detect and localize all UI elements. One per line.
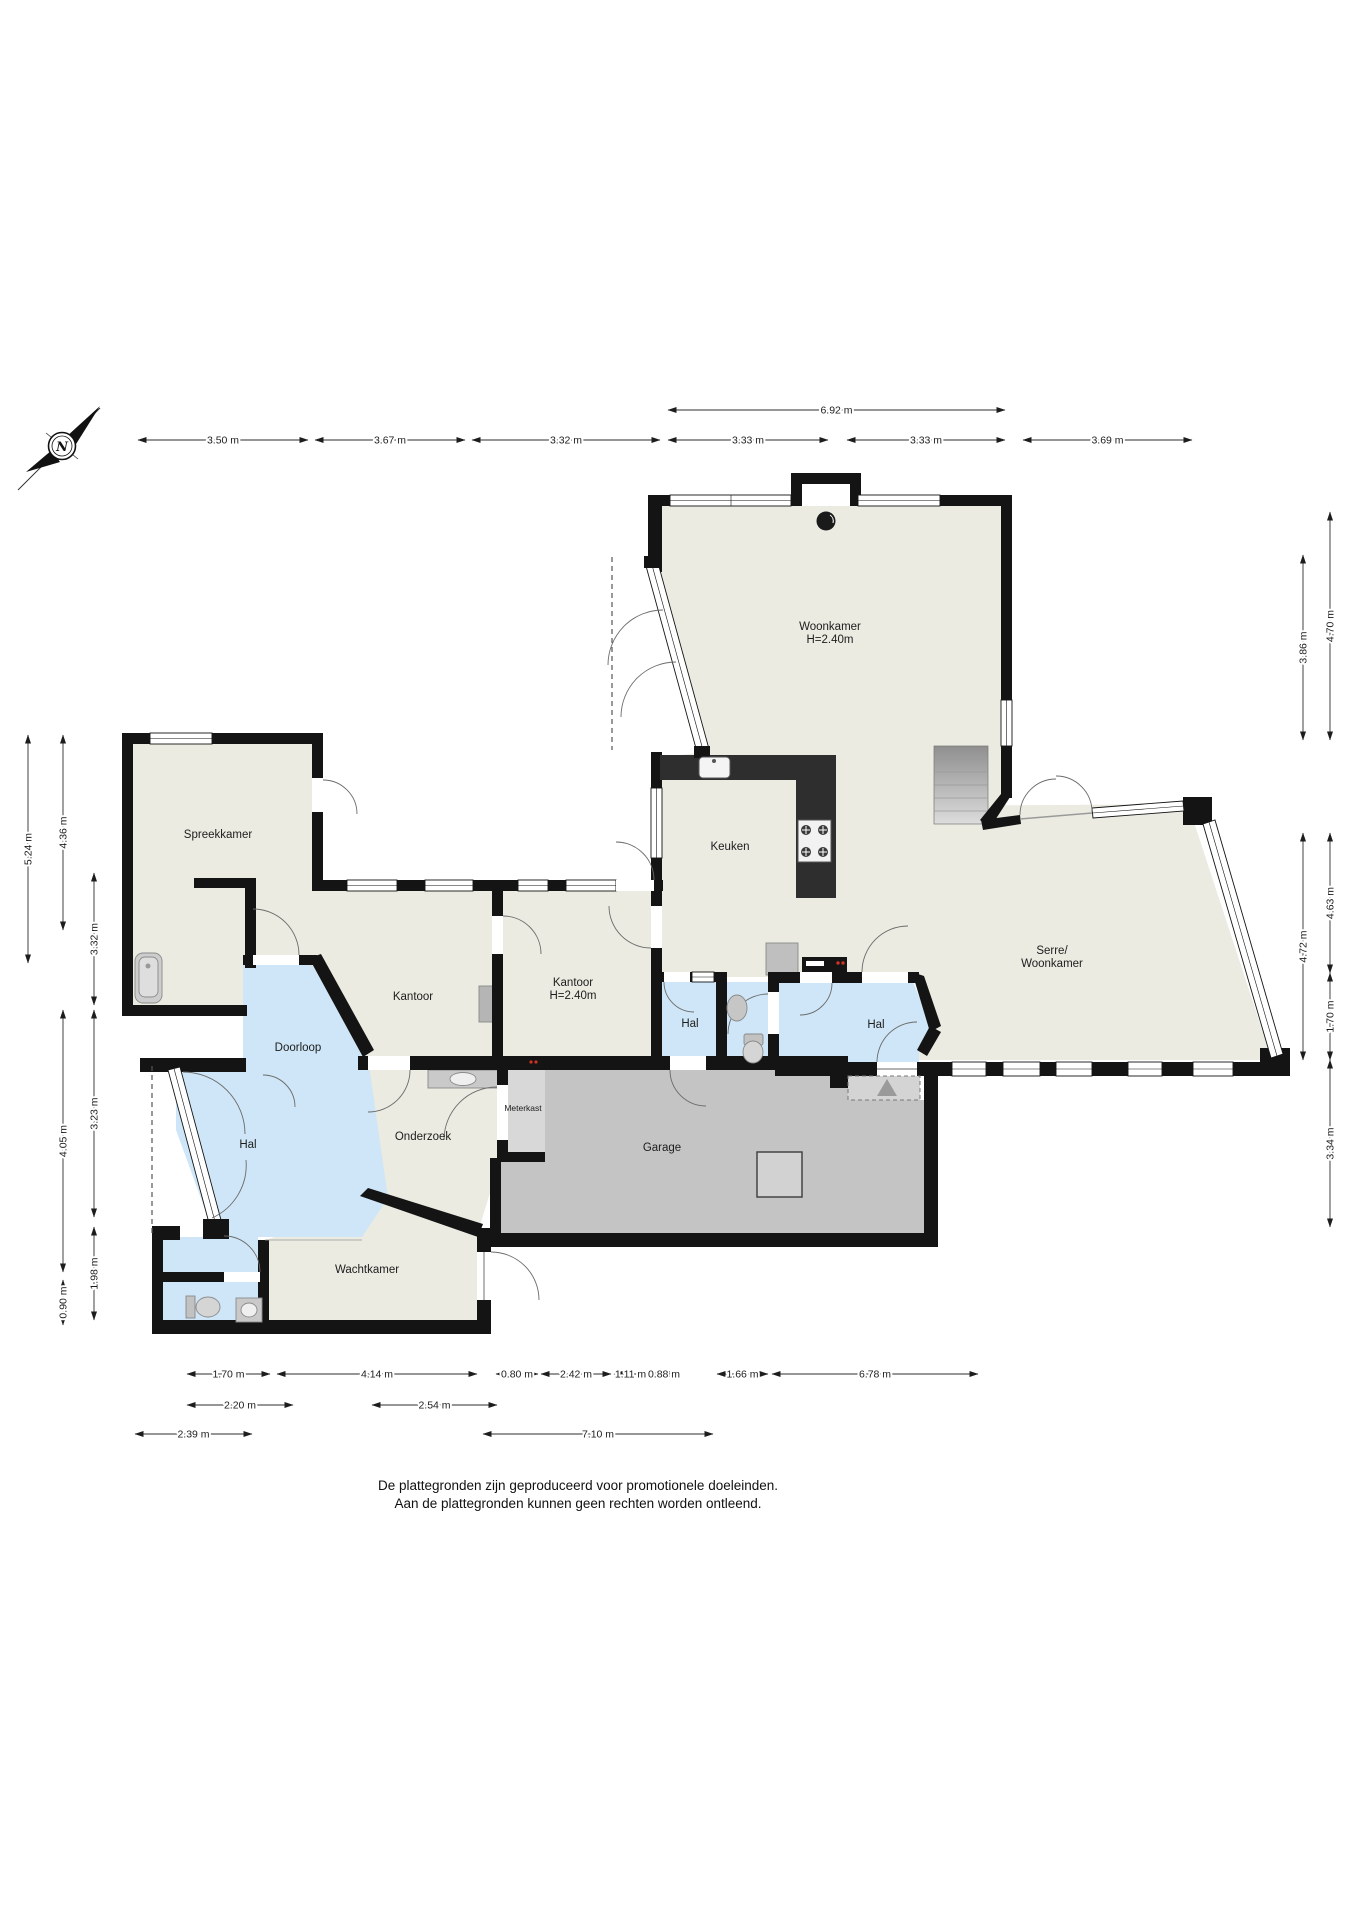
dim-label: 3.67 m (374, 435, 406, 447)
dim-label: 2.39 m (177, 1429, 209, 1441)
dim-label: 3.69 m (1091, 435, 1123, 447)
room-label-hal-links: Hal (239, 1139, 256, 1151)
dim-label: 4.72 m (1298, 930, 1310, 962)
dim-label: 0.90 m (58, 1286, 70, 1318)
dim-label: 4.05 m (58, 1125, 70, 1157)
dim-label: 1.70 m (212, 1369, 244, 1381)
floorplan-page: N 6.92 m3.50 m3.67 m3.32 m3.33 m3.33 m3.… (0, 0, 1358, 1920)
room-label-hal-klein: Hal (681, 1018, 698, 1030)
room-label-spreekkamer: Spreekkamer (184, 829, 253, 841)
room-label-kantoor-1: Kantoor (393, 991, 433, 1003)
compass-icon: N (18, 406, 100, 490)
dim-label: 2.54 m (418, 1400, 450, 1412)
dim-label: 3.32 m (550, 435, 582, 447)
kantoor-cabinet (479, 986, 493, 1022)
dim-label: 1.11 m (615, 1369, 647, 1381)
dim-label: 1.98 m (89, 1257, 101, 1289)
dim-label: 4.63 m (1325, 887, 1337, 919)
kitchen-counter-top (660, 755, 836, 780)
kitchen-cabinet (766, 943, 798, 975)
room-sublabel-serre: Woonkamer (1021, 958, 1083, 970)
room-label-woonkamer: Woonkamer (799, 621, 861, 633)
dim-label: 7.10 m (582, 1429, 614, 1441)
room-label-wachtkamer: Wachtkamer (335, 1264, 399, 1276)
dim-label: 3.33 m (732, 435, 764, 447)
room-label-serre: Serre/ (1036, 945, 1068, 957)
dim-label: 3.86 m (1298, 631, 1310, 663)
dim-label: 4.36 m (58, 816, 70, 848)
room-sublabel-kantoor-2: H=2.40m (550, 990, 597, 1002)
dim-label: 1.70 m (1325, 1000, 1337, 1032)
footer-disclaimer-line2: Aan de plattegronden kunnen geen rechten… (394, 1496, 761, 1511)
dim-label: 3.32 m (89, 923, 101, 955)
dim-label: 0.80 m (501, 1369, 533, 1381)
room-label-doorloop: Doorloop (275, 1042, 322, 1054)
dim-label: 2.42 m (560, 1369, 592, 1381)
room-label-keuken: Keuken (710, 841, 749, 853)
dim-label: 5.24 m (23, 833, 35, 865)
toilet-links-tank (186, 1296, 195, 1318)
dim-label: 6.78 m (859, 1369, 891, 1381)
dim-label: 3.33 m (910, 435, 942, 447)
room-label-kantoor-2: Kantoor (553, 977, 593, 989)
onderzoek-sink (450, 1073, 476, 1086)
dim-label: 0.88 m (648, 1369, 680, 1381)
dim-label: 6.92 m (820, 405, 852, 417)
room-label-meterkast: Meterkast (504, 1103, 542, 1113)
dim-label: 3.34 m (1325, 1127, 1337, 1159)
hal-rechts-floor (779, 982, 933, 1062)
footer-disclaimer-line1: De plattegronden zijn geproduceerd voor … (378, 1478, 778, 1493)
dim-label: 4.70 m (1325, 610, 1337, 642)
room-label-garage: Garage (643, 1142, 681, 1154)
floorplan-drawing: N 6.92 m3.50 m3.67 m3.32 m3.33 m3.33 m3.… (0, 0, 1358, 1920)
room-label-onderzoek: Onderzoek (395, 1131, 452, 1143)
dim-label: 4.14 m (361, 1369, 393, 1381)
room-label-hal-rechts: Hal (867, 1019, 884, 1031)
compass-north-label: N (55, 440, 69, 455)
dim-label: 1.66 m (726, 1369, 758, 1381)
washbasin (727, 995, 747, 1021)
toilet-links-bowl (196, 1297, 220, 1317)
dim-label: 3.50 m (207, 435, 239, 447)
dim-label: 2.20 m (224, 1400, 256, 1412)
room-sublabel-woonkamer: H=2.40m (807, 634, 854, 646)
dim-label: 3.23 m (89, 1097, 101, 1129)
chimney (817, 512, 836, 531)
garage-skylight (757, 1152, 802, 1197)
room-fills (133, 506, 1272, 1320)
toilet-bowl (743, 1041, 763, 1063)
